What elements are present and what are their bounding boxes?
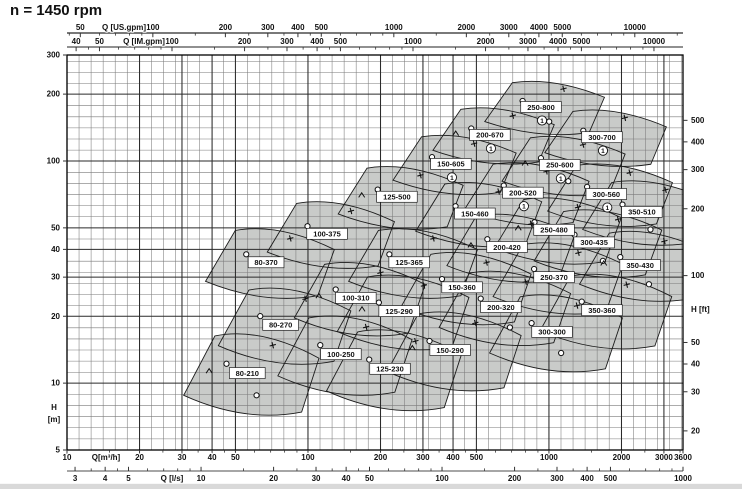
- svg-text:100-250: 100-250: [327, 350, 355, 359]
- marker-circle: [254, 393, 259, 398]
- pump-label-100-375[interactable]: 100-375: [307, 228, 348, 239]
- tick-label: 100: [435, 474, 449, 483]
- axis-unit-label: Q[m³/h]: [92, 453, 121, 462]
- svg-text:1: 1: [489, 146, 493, 153]
- pump-label-200-520[interactable]: 200-520: [503, 187, 544, 198]
- svg-text:300-435: 300-435: [580, 238, 608, 247]
- svg-text:150-605: 150-605: [437, 160, 465, 169]
- marker-circle: [531, 266, 536, 271]
- tick-label: 1000: [674, 474, 692, 483]
- tick-label: 40: [51, 245, 60, 254]
- marker-circle: [579, 299, 584, 304]
- tick-label: 500: [315, 23, 329, 32]
- tick-label: 300: [416, 453, 430, 462]
- tick-label: 5: [126, 474, 131, 483]
- tick-label: 200: [219, 23, 233, 32]
- svg-text:250-370: 250-370: [540, 273, 568, 282]
- marker-circle: [507, 325, 512, 330]
- svg-text:200-320: 200-320: [487, 303, 515, 312]
- tick-label: 500: [691, 116, 705, 125]
- tick-label: 30: [178, 453, 187, 462]
- tick-label: 10: [197, 474, 206, 483]
- pump-selection-chart: 250-8001200-6701300-7001150-6051250-6001…: [0, 0, 742, 489]
- pump-label-150-360[interactable]: 150-360: [442, 282, 483, 293]
- pump-label-250-370[interactable]: 250-370: [534, 272, 575, 283]
- tick-label: 200: [47, 90, 61, 99]
- note-1-badge: 1: [447, 173, 456, 182]
- marker-circle: [485, 237, 490, 242]
- note-1-badge: 1: [486, 144, 495, 153]
- pump-label-200-320[interactable]: 200-320: [481, 302, 522, 313]
- tick-label: 10: [51, 379, 60, 388]
- marker-circle: [224, 361, 229, 366]
- svg-text:125-365: 125-365: [395, 258, 423, 267]
- axis-im-gpm: 4050100200300400500100020003000400050001…: [67, 37, 683, 51]
- tick-label: 300: [691, 165, 705, 174]
- svg-text:1: 1: [559, 176, 563, 183]
- svg-text:100-375: 100-375: [313, 230, 341, 239]
- pump-label-125-500[interactable]: 125-500: [377, 191, 418, 202]
- svg-text:150-360: 150-360: [448, 283, 476, 292]
- note-1-badge: 1: [537, 116, 546, 125]
- pump-selection-screen: n = 1450 rpm 250-8001200-6701300-7001150…: [0, 0, 742, 489]
- svg-text:350-360: 350-360: [588, 306, 616, 315]
- pump-label-80-370[interactable]: 80-370: [248, 257, 284, 268]
- tick-label: 2000: [477, 37, 495, 46]
- pump-label-350-360[interactable]: 350-360: [582, 305, 623, 316]
- tick-label: 50: [76, 23, 85, 32]
- tick-label: 3000: [519, 37, 537, 46]
- tick-label: 3: [73, 474, 78, 483]
- tick-label: 300: [47, 51, 61, 60]
- pump-label-80-270[interactable]: 80-270: [263, 319, 299, 330]
- marker-circle: [566, 179, 571, 184]
- tick-label: 50: [231, 453, 240, 462]
- pump-label-300-700[interactable]: 300-700: [582, 132, 623, 143]
- tick-label: 100: [165, 37, 179, 46]
- axis-m3h: 1020304050100200300400500100020003000360…: [63, 450, 693, 462]
- tick-label: 100: [301, 453, 315, 462]
- pump-label-100-250[interactable]: 100-250: [321, 349, 362, 360]
- pump-label-300-300[interactable]: 300-300: [532, 326, 573, 337]
- tick-label: 200: [374, 453, 388, 462]
- svg-text:200-420: 200-420: [493, 243, 521, 252]
- marker-circle: [318, 343, 323, 348]
- tick-label: 2000: [613, 453, 631, 462]
- tick-label: 500: [334, 37, 348, 46]
- svg-text:80-270: 80-270: [269, 321, 292, 330]
- tick-label: 1000: [404, 37, 422, 46]
- pump-label-125-290[interactable]: 125-290: [379, 306, 420, 317]
- note-1-badge: 1: [556, 174, 565, 183]
- marker-circle: [376, 300, 381, 305]
- tick-label: 40: [208, 453, 217, 462]
- pump-label-350-510[interactable]: 350-510: [622, 206, 663, 217]
- marker-circle: [559, 350, 564, 355]
- axis-unit-label: Q [US.gpm]: [102, 23, 146, 32]
- tick-label: 4: [103, 474, 108, 483]
- axis-unit-label: [m]: [48, 415, 61, 424]
- svg-text:80-210: 80-210: [236, 369, 259, 378]
- pump-label-250-480[interactable]: 250-480: [534, 224, 575, 235]
- note-1-badge: 1: [519, 202, 528, 211]
- pump-label-80-210[interactable]: 80-210: [229, 368, 265, 379]
- tick-label: 30: [312, 474, 321, 483]
- pump-label-300-435[interactable]: 300-435: [574, 237, 615, 248]
- tick-label: 100: [47, 157, 61, 166]
- pump-label-200-420[interactable]: 200-420: [487, 242, 528, 253]
- tick-label: 30: [51, 273, 60, 282]
- tick-label: 40: [691, 360, 700, 369]
- tick-label: 20: [269, 474, 278, 483]
- axis-h-m: 30020010050403020105H[m]: [47, 51, 67, 455]
- pump-label-125-365[interactable]: 125-365: [389, 257, 430, 268]
- tick-label: 200: [691, 204, 705, 213]
- svg-text:150-290: 150-290: [436, 346, 464, 355]
- tick-label: 4000: [530, 23, 548, 32]
- marker-circle: [333, 287, 338, 292]
- tick-label: 5000: [573, 37, 591, 46]
- tick-label: 20: [51, 312, 60, 321]
- tick-label: 300: [550, 474, 564, 483]
- tick-label: 10000: [643, 37, 666, 46]
- pump-label-100-310[interactable]: 100-310: [336, 292, 377, 303]
- axis-unit-label: Q [l/s]: [161, 474, 184, 483]
- svg-text:1: 1: [601, 148, 605, 155]
- tick-label: 10000: [624, 23, 647, 32]
- marker-circle: [367, 357, 372, 362]
- marker-circle: [258, 314, 263, 319]
- tick-label: 300: [280, 37, 294, 46]
- tick-label: 20: [135, 453, 144, 462]
- svg-text:1: 1: [540, 118, 544, 125]
- svg-text:150-460: 150-460: [461, 209, 489, 218]
- marker-circle: [648, 227, 653, 232]
- tick-label: 4000: [549, 37, 567, 46]
- pump-label-350-430[interactable]: 350-430: [620, 260, 661, 271]
- marker-circle: [529, 321, 534, 326]
- marker-circle: [618, 254, 623, 259]
- svg-text:350-430: 350-430: [626, 261, 654, 270]
- tick-label: 50: [365, 474, 374, 483]
- tick-label: 400: [310, 37, 324, 46]
- axis-unit-label: H: [51, 403, 57, 412]
- tick-label: 100: [691, 271, 705, 280]
- footer-bar: [0, 484, 742, 489]
- tick-label: 50: [691, 338, 700, 347]
- marker-circle: [439, 276, 444, 281]
- marker-circle: [478, 296, 483, 301]
- marker-circle: [427, 338, 432, 343]
- svg-text:1: 1: [450, 175, 454, 182]
- svg-text:350-510: 350-510: [628, 208, 656, 217]
- tick-label: 20: [691, 426, 700, 435]
- tick-label: 400: [446, 453, 460, 462]
- tick-label: 2000: [457, 23, 475, 32]
- pump-label-150-460[interactable]: 150-460: [455, 208, 496, 219]
- tick-label: 5000: [553, 23, 571, 32]
- tick-label: 10: [63, 453, 72, 462]
- svg-text:1: 1: [522, 204, 526, 211]
- pump-label-300-560[interactable]: 300-560: [586, 189, 627, 200]
- svg-text:200-520: 200-520: [509, 188, 537, 197]
- marker-circle: [387, 252, 392, 257]
- note-1-badge: 1: [603, 203, 612, 212]
- pump-label-150-290[interactable]: 150-290: [430, 344, 471, 355]
- tick-label: 3000: [655, 453, 673, 462]
- axis-unit-label: H [ft]: [691, 305, 710, 314]
- svg-text:300-560: 300-560: [593, 190, 621, 199]
- pump-label-250-800[interactable]: 250-800: [521, 101, 562, 112]
- tick-label: 100: [146, 23, 160, 32]
- pump-label-200-670[interactable]: 200-670: [470, 129, 511, 140]
- axis-unit-label: Q [IM.gpm]: [123, 37, 165, 46]
- note-1-badge: 1: [598, 146, 607, 155]
- tick-label: 500: [604, 474, 618, 483]
- svg-text:250-800: 250-800: [527, 103, 555, 112]
- tick-label: 200: [508, 474, 522, 483]
- tick-label: 5: [56, 446, 61, 455]
- pump-label-125-230[interactable]: 125-230: [370, 363, 411, 374]
- svg-text:80-370: 80-370: [254, 258, 277, 267]
- marker-circle: [646, 282, 651, 287]
- tick-label: 3600: [674, 453, 692, 462]
- marker-circle: [547, 119, 552, 124]
- tick-label: 200: [238, 37, 252, 46]
- tick-label: 50: [95, 37, 104, 46]
- tick-label: 3000: [500, 23, 518, 32]
- tick-label: 400: [291, 23, 305, 32]
- pump-label-150-605[interactable]: 150-605: [431, 158, 472, 169]
- tick-label: 400: [691, 137, 705, 146]
- tick-label: 500: [470, 453, 484, 462]
- svg-text:100-310: 100-310: [342, 294, 370, 303]
- svg-text:125-500: 125-500: [383, 193, 411, 202]
- svg-text:1: 1: [605, 205, 609, 212]
- tick-label: 300: [261, 23, 275, 32]
- svg-text:125-230: 125-230: [376, 365, 404, 374]
- pump-label-250-600[interactable]: 250-600: [540, 159, 581, 170]
- svg-text:300-300: 300-300: [538, 328, 566, 337]
- tick-label: 50: [51, 223, 60, 232]
- axis-us-gpm: 5010020030040050010002000300040005000100…: [67, 23, 683, 37]
- tick-label: 30: [691, 387, 700, 396]
- svg-text:250-480: 250-480: [540, 226, 568, 235]
- tick-label: 1000: [540, 453, 558, 462]
- axis-h-ft: 50040030020010050403020H [ft]: [683, 116, 710, 436]
- tick-label: 1000: [385, 23, 403, 32]
- tick-label: 400: [580, 474, 594, 483]
- svg-text:125-290: 125-290: [385, 307, 413, 316]
- tick-label: 40: [72, 37, 81, 46]
- svg-text:250-600: 250-600: [546, 161, 574, 170]
- svg-text:200-670: 200-670: [476, 131, 504, 140]
- axis-l-s: 34510203040501002003004005001000Q [l/s]: [67, 467, 692, 483]
- svg-text:300-700: 300-700: [588, 133, 616, 142]
- marker-circle: [244, 252, 249, 257]
- tick-label: 40: [342, 474, 351, 483]
